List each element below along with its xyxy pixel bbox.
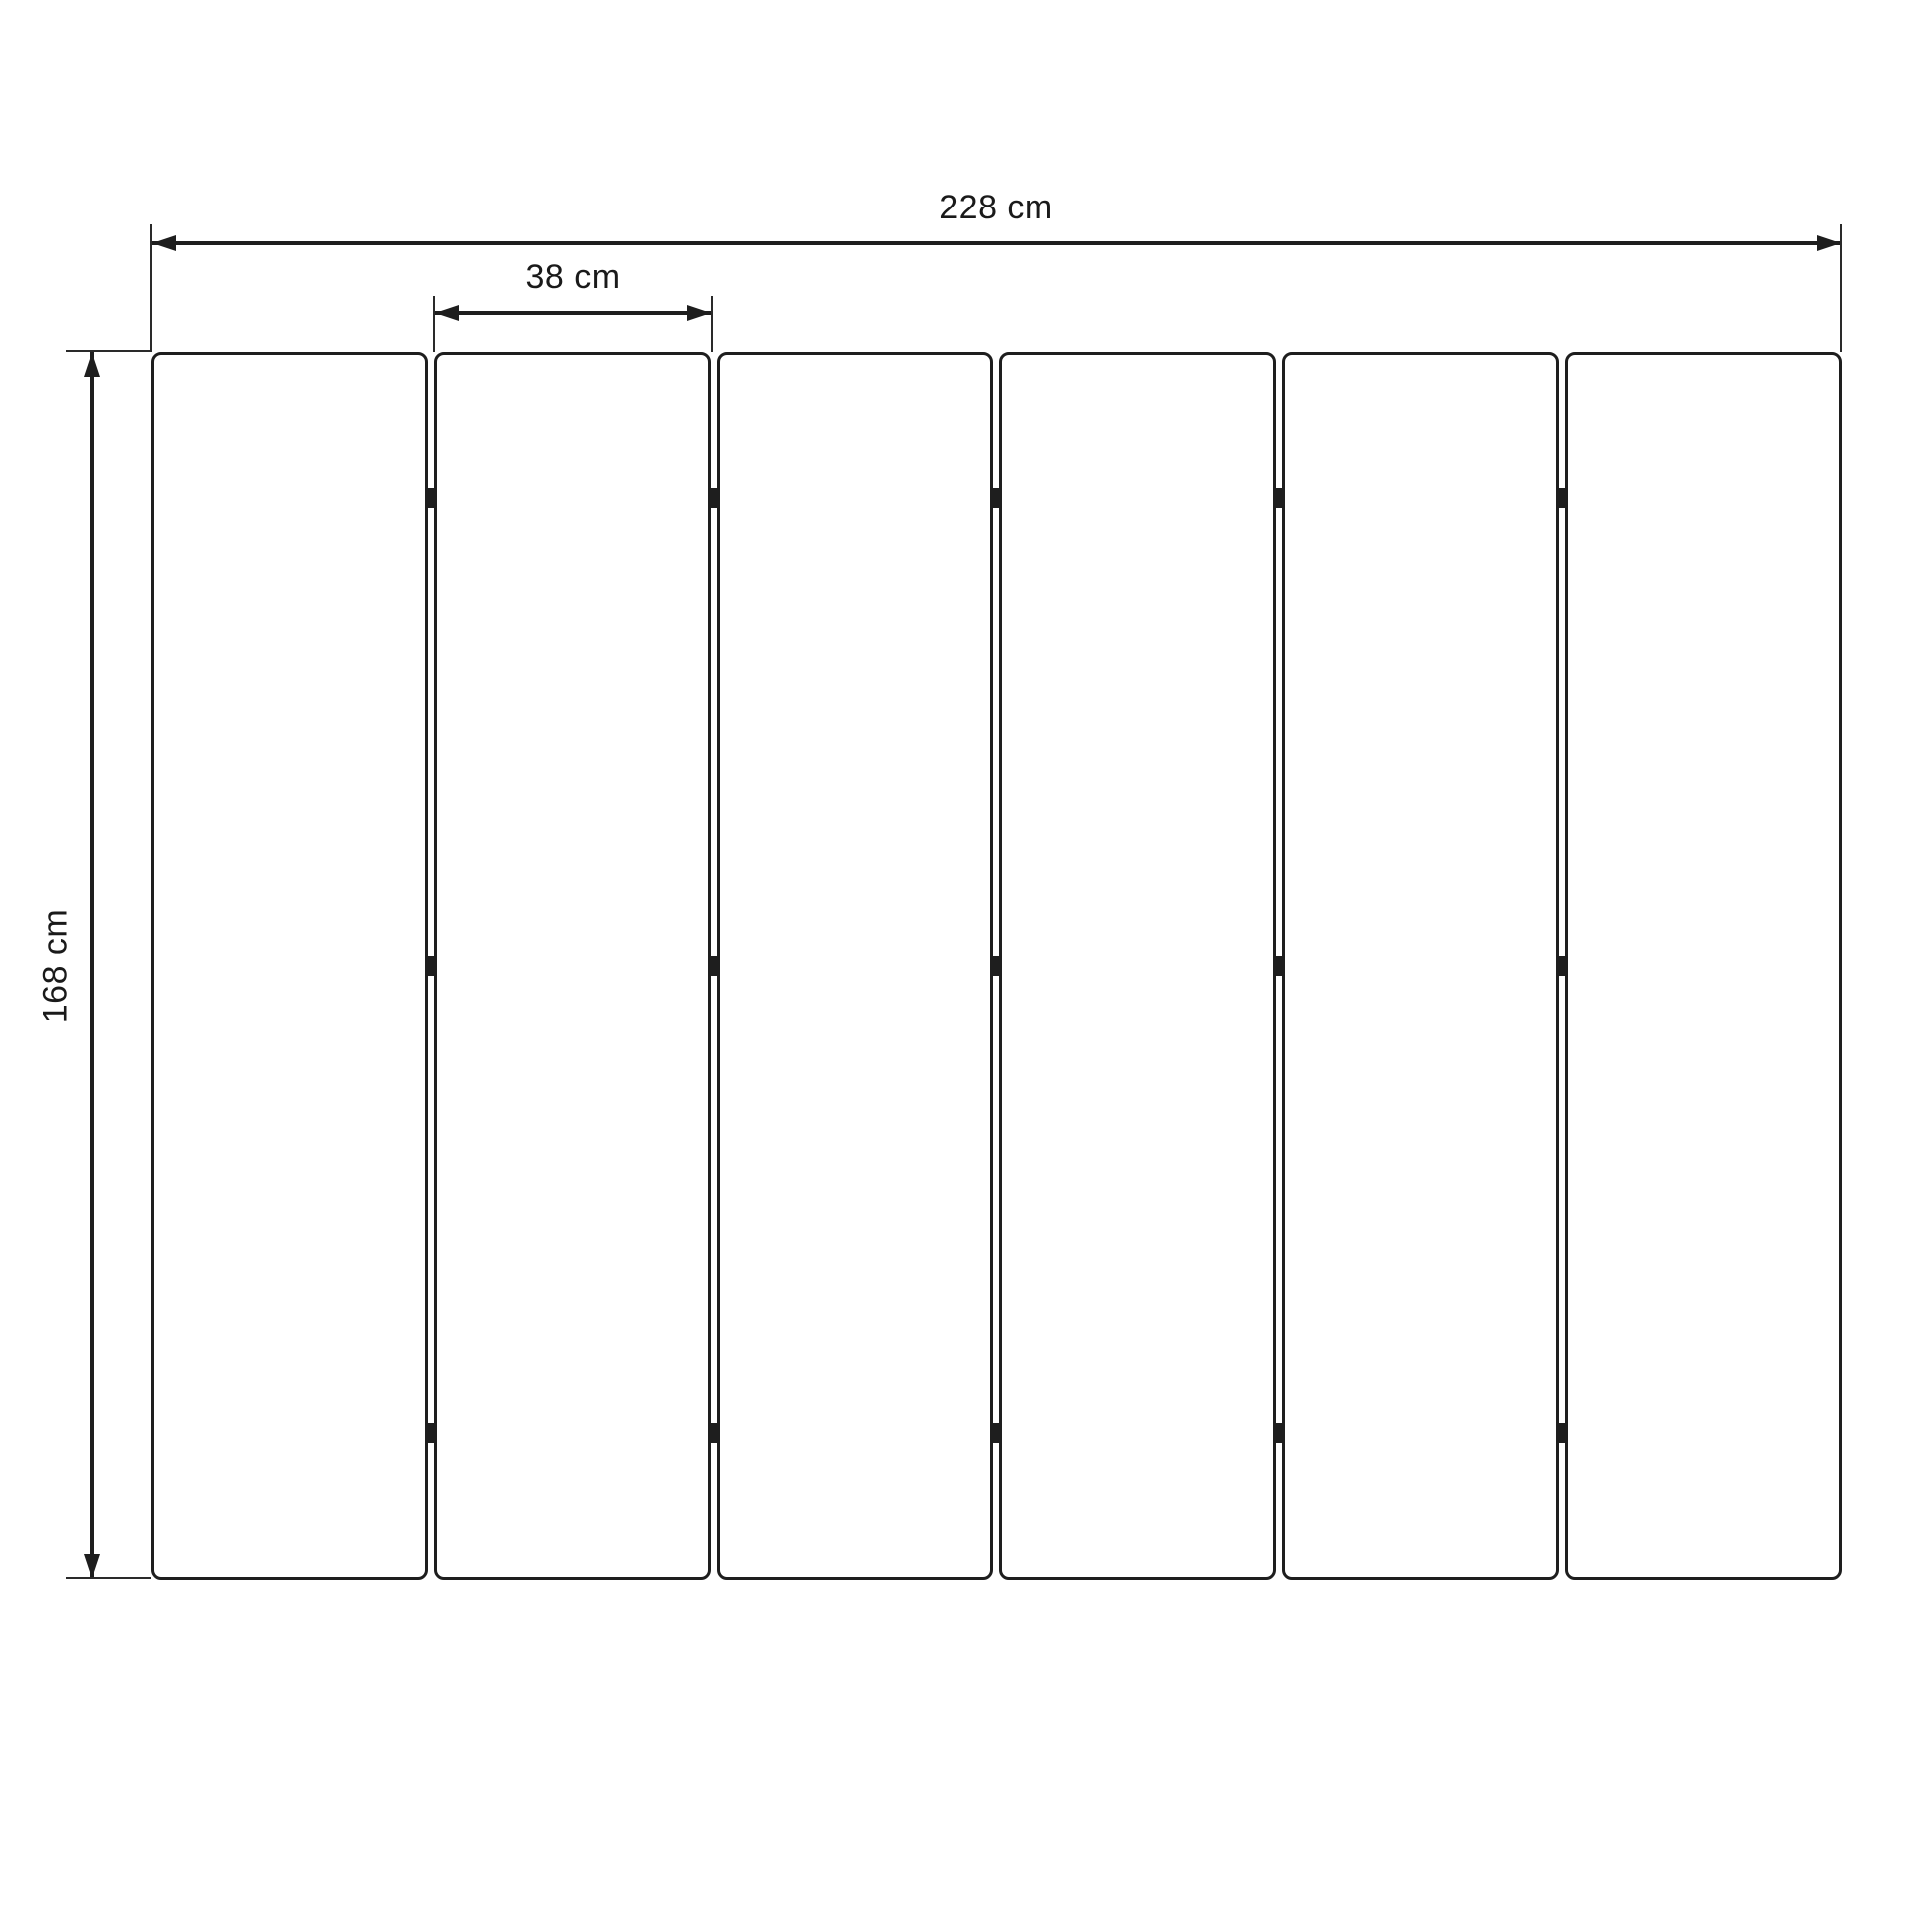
hinge-mark [426, 488, 435, 508]
hinge-mark [1275, 1423, 1284, 1443]
extension-line [1840, 224, 1842, 352]
panel-width-dimension-line [434, 311, 712, 315]
extension-line [150, 224, 152, 352]
arrowhead-left-icon [435, 305, 459, 321]
hinge-mark [992, 956, 1001, 976]
hinge-mark [709, 956, 718, 976]
hinge-mark [709, 488, 718, 508]
hinge-mark [1558, 956, 1567, 976]
hinge-mark [1275, 956, 1284, 976]
arrowhead-down-icon [84, 1554, 100, 1578]
extension-line [66, 350, 151, 352]
extension-line [433, 296, 435, 352]
panel-dimension-diagram: 228 cm 38 cm 168 cm [0, 0, 1932, 1932]
panel-5 [1282, 352, 1559, 1580]
hinge-mark [709, 1423, 718, 1443]
hinge-mark [992, 488, 1001, 508]
arrowhead-up-icon [84, 353, 100, 377]
panel-assembly [151, 352, 1842, 1580]
hinge-mark [426, 956, 435, 976]
arrowhead-left-icon [152, 235, 176, 251]
hinge-mark [1275, 488, 1284, 508]
panel-4 [999, 352, 1276, 1580]
arrowhead-right-icon [1817, 235, 1841, 251]
panel-3 [717, 352, 994, 1580]
panel-width-label: 38 cm [434, 258, 712, 297]
extension-line [66, 1577, 151, 1579]
height-dimension-line [90, 352, 94, 1579]
height-label: 168 cm [37, 909, 75, 1024]
hinge-mark [1558, 1423, 1567, 1443]
extension-line [711, 296, 713, 352]
hinge-mark [426, 1423, 435, 1443]
panel-6 [1565, 352, 1842, 1580]
hinge-mark [1558, 488, 1567, 508]
panel-1 [151, 352, 428, 1580]
panel-2 [434, 352, 711, 1580]
total-width-dimension-line [151, 241, 1842, 245]
arrowhead-right-icon [687, 305, 711, 321]
hinge-mark [992, 1423, 1001, 1443]
total-width-label: 228 cm [151, 189, 1842, 227]
